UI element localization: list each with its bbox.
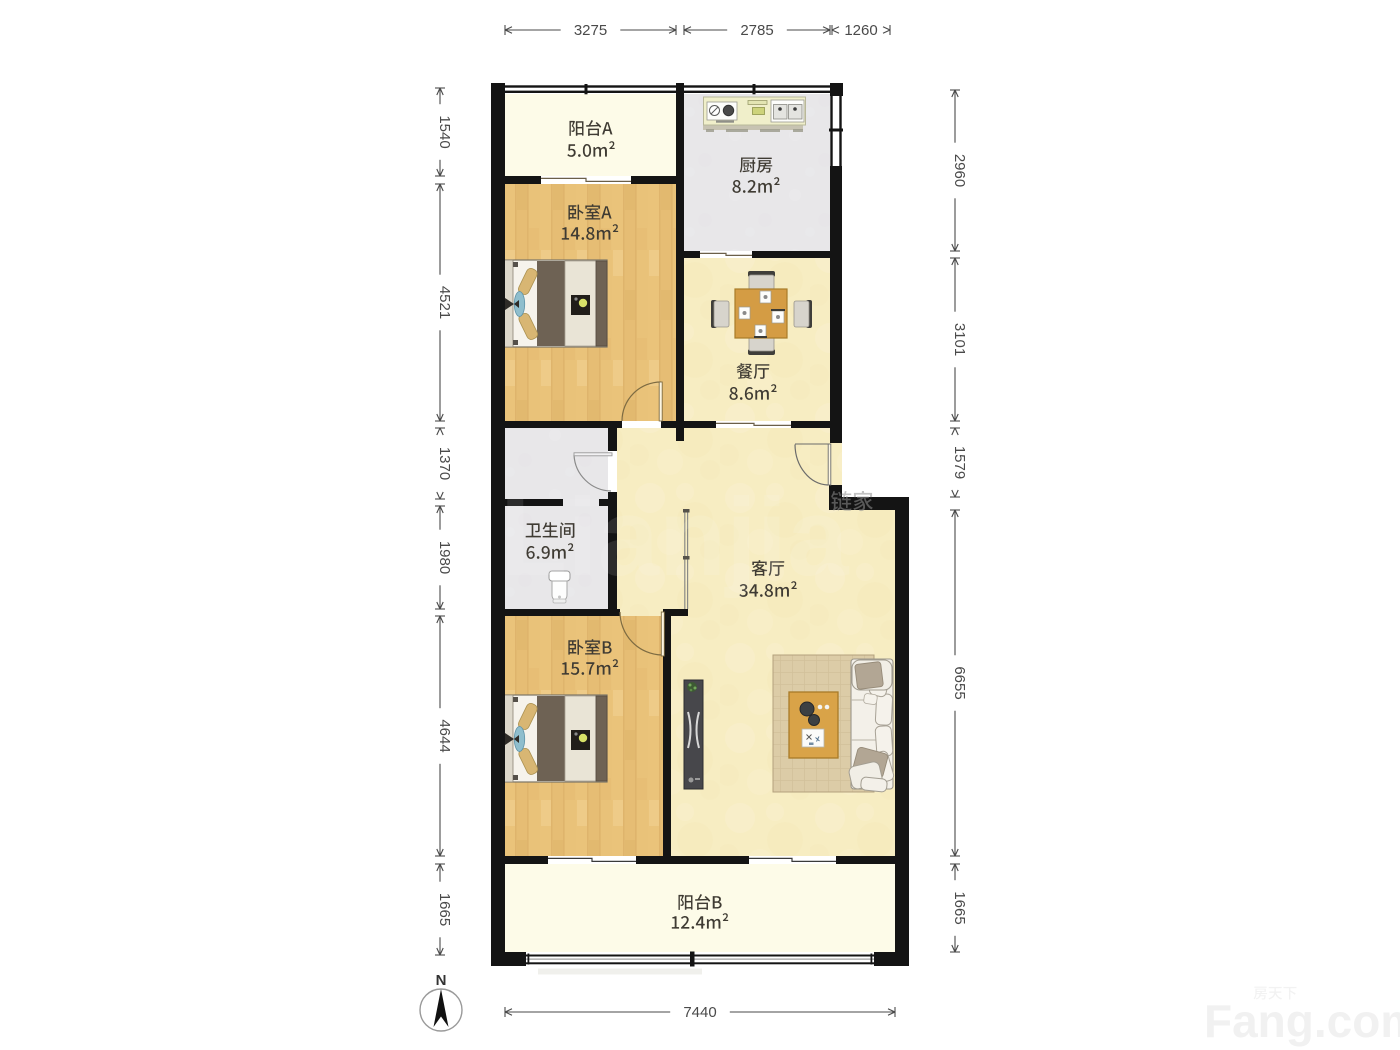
svg-text:1370: 1370	[436, 447, 453, 480]
svg-text:1980: 1980	[436, 541, 453, 574]
svg-text:1260: 1260	[844, 22, 877, 39]
svg-text:Lianjia: Lianjia	[500, 476, 849, 599]
svg-text:1540: 1540	[436, 115, 453, 148]
svg-text:3275: 3275	[574, 22, 607, 39]
svg-text:4521: 4521	[436, 286, 453, 319]
svg-text:1665: 1665	[436, 893, 453, 926]
svg-text:Fang.com: Fang.com	[1204, 995, 1400, 1047]
svg-text:6655: 6655	[951, 666, 968, 699]
svg-text:3101: 3101	[951, 323, 968, 356]
svg-text:1579: 1579	[951, 446, 968, 479]
svg-text:2960: 2960	[951, 154, 968, 187]
svg-text:2785: 2785	[740, 22, 773, 39]
svg-text:7440: 7440	[683, 1004, 716, 1021]
svg-text:1665: 1665	[951, 891, 968, 924]
svg-text:N: N	[436, 972, 447, 989]
svg-text:4644: 4644	[436, 719, 453, 752]
